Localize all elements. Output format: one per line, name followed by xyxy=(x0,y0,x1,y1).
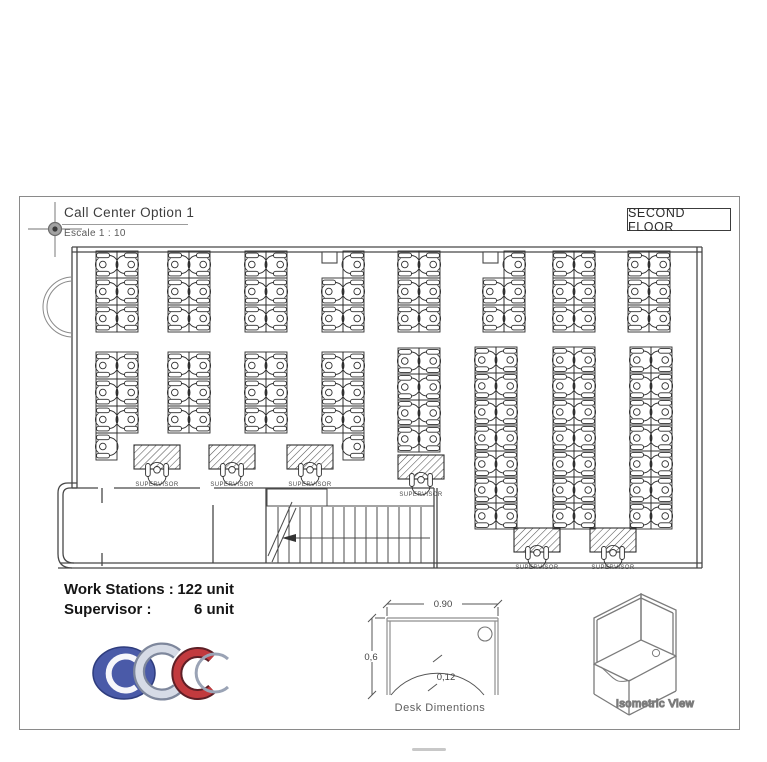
workstation-seat xyxy=(627,253,650,276)
workstations-stat-label: Work Stations : xyxy=(64,580,174,600)
workstation-seat xyxy=(321,408,344,431)
workstation-seat xyxy=(573,253,596,276)
workstation-seat xyxy=(265,280,288,303)
workstation-seat xyxy=(321,307,344,330)
workstation-cluster xyxy=(167,251,210,332)
workstation-seat xyxy=(650,453,673,476)
workstation-cluster xyxy=(474,347,517,529)
supervisor-label: SUPERVISOR xyxy=(210,482,254,488)
workstation-seat xyxy=(418,307,441,330)
legend-stats: Work Stations : 122 unit Supervisor : 6 … xyxy=(64,580,234,620)
desk-height-dim: 0,6 xyxy=(364,652,377,663)
workstation-seat xyxy=(418,280,441,303)
workstation-seat xyxy=(321,280,344,303)
workstation-seat xyxy=(188,354,211,377)
workstation-seat xyxy=(629,401,652,424)
workstation-seat xyxy=(244,253,267,276)
workstation-seat xyxy=(573,505,596,528)
workstation-seat xyxy=(573,453,596,476)
workstation-seat xyxy=(397,428,420,451)
drawing-scale: Escale 1 : 10 xyxy=(64,228,126,239)
workstation-seat xyxy=(629,375,652,398)
workstation-seat xyxy=(116,354,139,377)
workstation-seat xyxy=(116,307,139,330)
workstation-seat xyxy=(648,280,671,303)
workstation-seat xyxy=(342,307,365,330)
workstation-seat xyxy=(629,349,652,372)
workstation-cluster xyxy=(397,348,440,452)
workstation-seat xyxy=(573,280,596,303)
workstation-seat xyxy=(167,307,190,330)
workstation-seat xyxy=(188,280,211,303)
supervisor-label: SUPERVISOR xyxy=(135,482,179,488)
workstation-seat xyxy=(397,253,420,276)
workstation-seat xyxy=(650,427,673,450)
workstation-seat xyxy=(167,408,190,431)
workstation-seat xyxy=(474,349,497,372)
workstation-seat xyxy=(482,307,505,330)
workstation-cluster xyxy=(321,352,364,460)
workstation-seat xyxy=(397,376,420,399)
desk-depth-dim: 0,12 xyxy=(437,672,456,683)
workstation-cluster xyxy=(629,347,672,529)
workstation-seat xyxy=(495,375,518,398)
workstation-seat xyxy=(495,401,518,424)
workstation-seat xyxy=(188,381,211,404)
workstation-seat xyxy=(342,435,365,458)
workstation-cluster xyxy=(167,352,210,433)
workstation-seat xyxy=(95,253,118,276)
workstation-seat xyxy=(116,381,139,404)
workstation-seat xyxy=(495,453,518,476)
supervisor-label: SUPERVISOR xyxy=(399,492,443,498)
walls xyxy=(58,247,702,568)
workstation-seat xyxy=(627,280,650,303)
workstation-seat xyxy=(650,349,673,372)
workstation-cluster xyxy=(244,251,287,332)
workstation-seat xyxy=(265,354,288,377)
workstation-seat xyxy=(495,349,518,372)
stairs xyxy=(266,489,434,563)
workstation-seat xyxy=(116,280,139,303)
workstation-seat xyxy=(95,408,118,431)
workstation-seat xyxy=(342,280,365,303)
desk-dimensions-drawing: 0.90 0,6 0,12 Desk Dimentions xyxy=(359,598,502,714)
workstation-seat xyxy=(495,427,518,450)
supervisor-stat-label: Supervisor : xyxy=(64,600,174,620)
workstation-cluster xyxy=(552,347,595,529)
workstation-seat xyxy=(627,307,650,330)
workstation-seat xyxy=(629,427,652,450)
isometric-view-drawing: Isometric View xyxy=(594,594,694,715)
workstation-seat xyxy=(95,280,118,303)
drawing-sheet: SUPERVISORSUPERVISORSUPERVISORSUPERVISOR… xyxy=(0,0,767,762)
workstation-seat xyxy=(244,307,267,330)
desk-width-dim: 0.90 xyxy=(434,599,453,610)
workstation-seat xyxy=(188,408,211,431)
workstation-seat xyxy=(650,479,673,502)
workstation-seat xyxy=(244,381,267,404)
workstation-seat xyxy=(495,505,518,528)
workstation-seat xyxy=(397,402,420,425)
workstation-seat xyxy=(244,354,267,377)
workstation-seat xyxy=(629,453,652,476)
workstation-seat xyxy=(167,354,190,377)
workstation-clusters xyxy=(95,251,672,529)
workstation-seat xyxy=(265,408,288,431)
workstation-seat xyxy=(474,505,497,528)
drawing-title: Call Center Option 1 xyxy=(64,205,194,220)
workstations-stat-value: 122 unit xyxy=(174,580,234,600)
workstation-seat xyxy=(552,427,575,450)
workstation-seat xyxy=(650,401,673,424)
workstation-seat xyxy=(573,401,596,424)
supervisor-label: SUPERVISOR xyxy=(515,565,559,571)
workstation-seat xyxy=(418,253,441,276)
workstation-cluster xyxy=(244,352,287,433)
workstation-seat xyxy=(188,307,211,330)
workstation-seat xyxy=(552,253,575,276)
workstation-seat xyxy=(397,350,420,373)
workstation-seat xyxy=(648,307,671,330)
workstation-seat xyxy=(552,280,575,303)
supervisor-station: SUPERVISOR xyxy=(590,528,636,571)
workstation-seat xyxy=(95,354,118,377)
workstation-seat xyxy=(648,253,671,276)
workstation-seat xyxy=(167,253,190,276)
workstation-seat xyxy=(95,307,118,330)
workstation-seat xyxy=(265,307,288,330)
workstation-seat xyxy=(573,375,596,398)
workstation-seat xyxy=(552,479,575,502)
workstation-seat xyxy=(418,376,441,399)
workstation-seat xyxy=(265,381,288,404)
supervisor-station: SUPERVISOR xyxy=(287,445,333,488)
workstation-seat xyxy=(482,280,505,303)
workstation-seat xyxy=(495,479,518,502)
supervisor-station: SUPERVISOR xyxy=(398,455,444,498)
workstation-seat xyxy=(167,381,190,404)
workstation-seat xyxy=(397,307,420,330)
workstation-seat xyxy=(573,349,596,372)
workstation-cluster xyxy=(397,251,440,332)
workstation-seat xyxy=(503,253,526,276)
workstation-seat xyxy=(95,381,118,404)
workstation-seat xyxy=(552,307,575,330)
workstation-seat xyxy=(552,375,575,398)
supervisor-label: SUPERVISOR xyxy=(288,482,332,488)
workstation-seat xyxy=(573,479,596,502)
company-logo xyxy=(93,647,228,699)
floor-tag: SECOND FLOOR xyxy=(627,208,731,231)
workstation-seat xyxy=(418,402,441,425)
workstation-seat xyxy=(629,505,652,528)
workstation-seat xyxy=(342,253,365,276)
supervisor-station: SUPERVISOR xyxy=(134,445,180,488)
workstation-seat xyxy=(418,350,441,373)
supervisor-stat-value: 6 unit xyxy=(174,600,234,620)
workstation-seat xyxy=(573,307,596,330)
workstation-seat xyxy=(321,381,344,404)
supervisor-label: SUPERVISOR xyxy=(591,565,635,571)
workstation-seat xyxy=(244,280,267,303)
workstation-seat xyxy=(552,349,575,372)
workstation-seat xyxy=(474,479,497,502)
supervisor-stat: Supervisor : 6 unit xyxy=(64,600,234,620)
workstation-seat xyxy=(244,408,267,431)
desk-grommet-icon xyxy=(478,627,492,641)
workstation-seat xyxy=(503,280,526,303)
workstation-seat xyxy=(474,427,497,450)
workstation-seat xyxy=(342,354,365,377)
workstation-seat xyxy=(397,280,420,303)
workstation-seat xyxy=(552,505,575,528)
floor-plan: SUPERVISORSUPERVISORSUPERVISORSUPERVISOR… xyxy=(0,0,767,762)
workstation-seat xyxy=(552,453,575,476)
workstation-seat xyxy=(573,427,596,450)
workstation-seat xyxy=(418,428,441,451)
supervisor-station: SUPERVISOR xyxy=(209,445,255,488)
workstation-seat xyxy=(265,253,288,276)
workstation-seat xyxy=(629,479,652,502)
title-underline xyxy=(62,224,188,225)
workstation-seat xyxy=(188,253,211,276)
workstation-seat xyxy=(474,375,497,398)
workstation-seat xyxy=(474,401,497,424)
workstation-seat xyxy=(342,381,365,404)
workstation-cluster xyxy=(552,251,595,332)
desk-dimensions-caption: Desk Dimentions xyxy=(395,702,486,714)
workstation-cluster xyxy=(95,251,138,332)
workstation-seat xyxy=(167,280,190,303)
isometric-caption: Isometric View xyxy=(616,698,694,710)
workstation-seat xyxy=(342,408,365,431)
workstation-seat xyxy=(474,453,497,476)
workstation-seat xyxy=(116,408,139,431)
workstation-seat xyxy=(552,401,575,424)
workstation-seat xyxy=(116,253,139,276)
workstation-cluster xyxy=(627,251,670,332)
supervisor-station: SUPERVISOR xyxy=(514,528,560,571)
workstation-seat xyxy=(503,307,526,330)
workstations-stat: Work Stations : 122 unit xyxy=(64,580,234,600)
workstation-cluster xyxy=(95,352,138,460)
workstation-seat xyxy=(95,435,118,458)
workstation-seat xyxy=(650,375,673,398)
wall-arc xyxy=(43,277,73,337)
page-artifact xyxy=(412,748,446,751)
workstation-seat xyxy=(321,354,344,377)
workstation-seat xyxy=(650,505,673,528)
